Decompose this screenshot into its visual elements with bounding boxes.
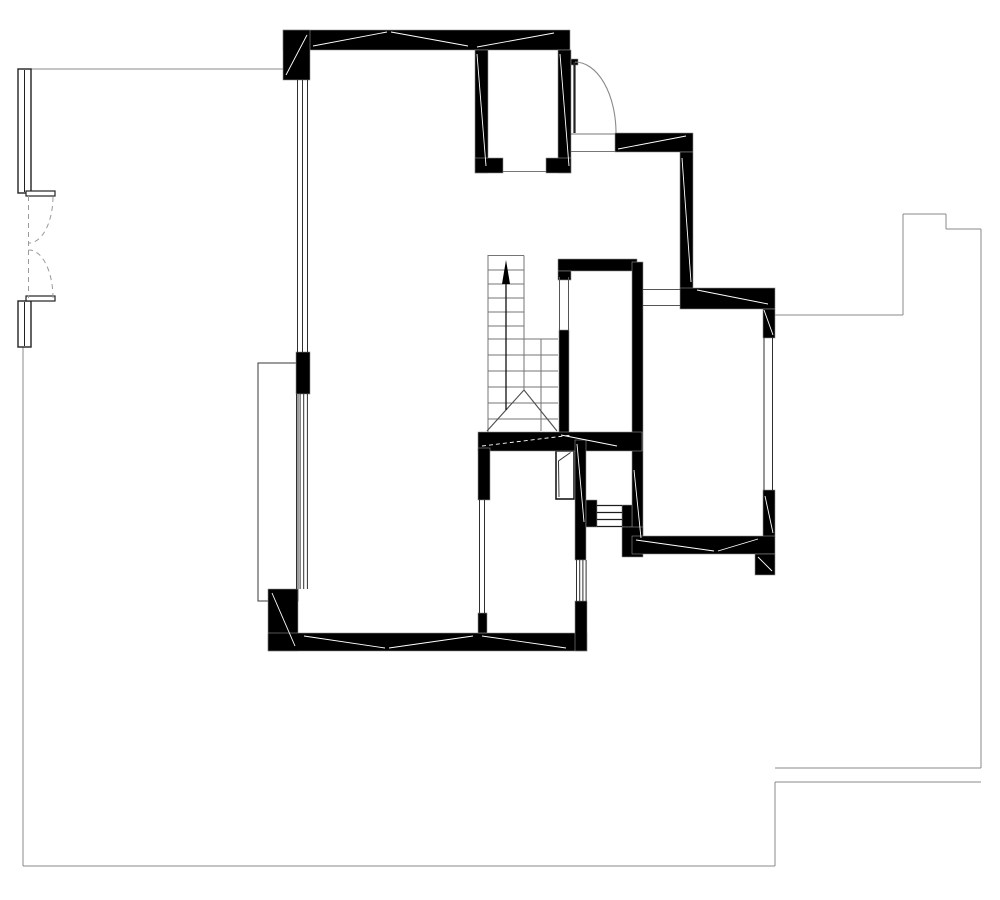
left-door-jamb-tick-upper xyxy=(26,191,55,196)
right-room-top-wall xyxy=(680,288,775,309)
left-door-jamb-tick-lower xyxy=(26,296,55,301)
louver-left-jamb xyxy=(586,500,597,527)
right-room-left-wall xyxy=(632,262,643,554)
right-room-bottom-wall xyxy=(632,536,775,554)
louver-slats xyxy=(597,506,622,527)
planter-outline xyxy=(258,363,298,601)
floor-plan-page xyxy=(0,0,1000,900)
shaft-bottom-wall-right xyxy=(546,158,571,173)
boundary-layer xyxy=(23,69,981,866)
bath-left-wall-stub xyxy=(478,613,487,633)
understair-wall xyxy=(478,432,642,451)
right-room-window xyxy=(764,338,773,490)
hairline-layer xyxy=(272,32,773,648)
louver-right-jamb xyxy=(622,505,632,527)
left-wall-pier xyxy=(296,352,310,394)
polygon-layer xyxy=(502,260,510,284)
bath-right-window xyxy=(577,560,587,601)
bath-left-window xyxy=(480,500,485,613)
bath-right-bottom-pier xyxy=(575,601,587,651)
stair-outline xyxy=(488,255,541,432)
bath-left-wall xyxy=(478,448,490,500)
main-room-upper-window xyxy=(298,80,308,352)
top-wall xyxy=(283,30,570,50)
stair-break-lines xyxy=(487,390,557,431)
stair-treads-lower-flight xyxy=(488,339,558,419)
floor-plan-svg xyxy=(0,0,1000,900)
left-double-door-swing-upper xyxy=(29,197,54,243)
hall-top-wall xyxy=(558,259,637,271)
bath-right-wall xyxy=(575,440,586,560)
hall-opening-edges xyxy=(643,290,680,306)
entry-door-swing-arc xyxy=(575,62,616,133)
wall-layer xyxy=(268,30,775,651)
entry-threshold xyxy=(571,134,615,152)
stair-opening-edges xyxy=(560,277,569,330)
shaft-bottom-wall-left xyxy=(475,158,503,173)
left-double-door-swing-lower xyxy=(29,250,54,298)
stair-side-wall xyxy=(559,330,569,433)
bottom-wall xyxy=(268,633,587,651)
stair-direction-arrowhead xyxy=(502,260,510,284)
